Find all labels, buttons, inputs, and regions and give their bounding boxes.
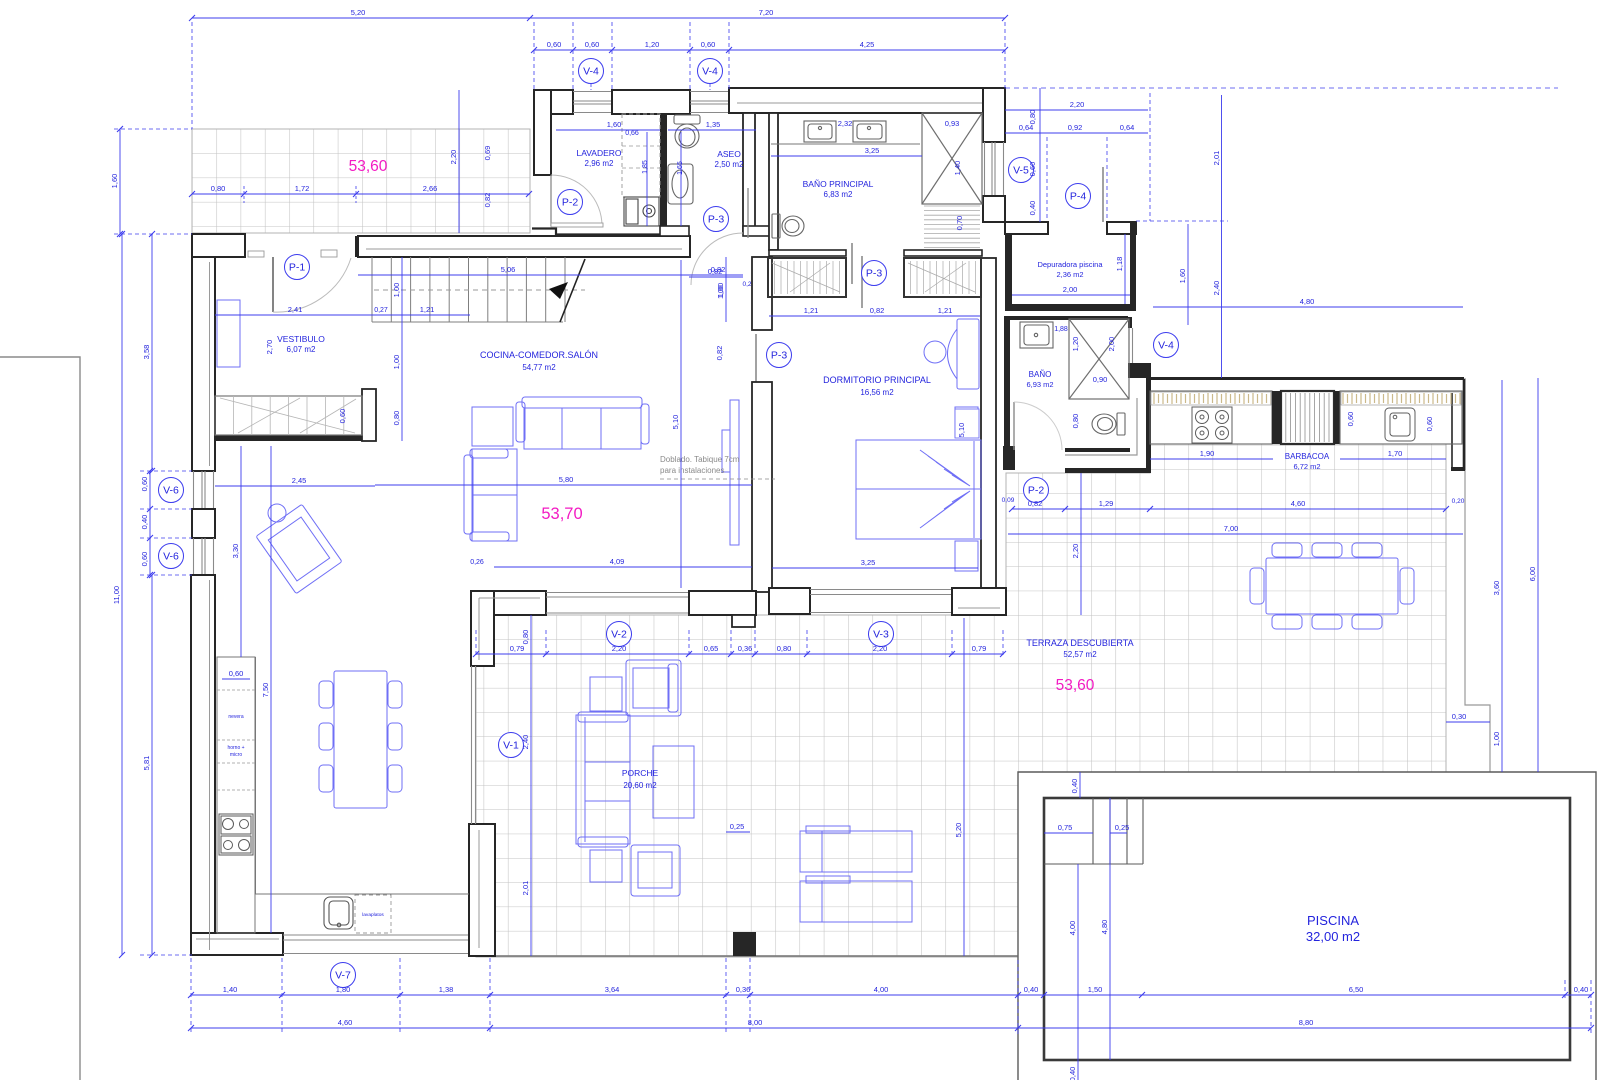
svg-text:4,00: 4,00	[874, 985, 889, 994]
svg-text:1,40: 1,40	[223, 985, 238, 994]
svg-text:3,30: 3,30	[231, 544, 240, 559]
svg-text:52,57 m2: 52,57 m2	[1063, 650, 1097, 659]
svg-text:2,01: 2,01	[1212, 151, 1221, 166]
svg-text:0,60: 0,60	[547, 40, 562, 49]
svg-text:4,80: 4,80	[1100, 920, 1109, 935]
svg-text:0,64: 0,64	[1120, 123, 1135, 132]
svg-text:1,60: 1,60	[1178, 269, 1187, 284]
svg-text:6,07 m2: 6,07 m2	[287, 345, 316, 354]
svg-text:0,70: 0,70	[955, 216, 964, 231]
svg-text:8,80: 8,80	[1299, 1018, 1314, 1027]
svg-text:16,56 m2: 16,56 m2	[860, 388, 894, 397]
svg-text:V-7: V-7	[335, 970, 351, 982]
svg-text:20,60 m2: 20,60 m2	[623, 781, 657, 790]
svg-text:3,64: 3,64	[605, 985, 620, 994]
svg-text:2,70: 2,70	[265, 340, 274, 355]
svg-text:7,00: 7,00	[1224, 524, 1239, 533]
svg-text:P-2: P-2	[1028, 485, 1045, 497]
svg-text:0,80: 0,80	[392, 411, 401, 426]
svg-text:V-2: V-2	[611, 629, 627, 641]
svg-text:7,50: 7,50	[261, 683, 270, 698]
svg-text:54,77 m2: 54,77 m2	[522, 363, 556, 372]
svg-text:0,60: 0,60	[701, 40, 716, 49]
svg-text:1,80: 1,80	[336, 985, 351, 994]
svg-text:1,35: 1,35	[706, 120, 721, 129]
svg-text:Doblado. Tabique 7cm: Doblado. Tabique 7cm	[660, 455, 740, 464]
svg-text:0,40: 0,40	[1574, 985, 1589, 994]
svg-text:V-1: V-1	[503, 740, 519, 752]
svg-text:4,80: 4,80	[1300, 297, 1315, 306]
svg-text:0,60: 0,60	[1346, 412, 1355, 427]
svg-text:2,41: 2,41	[288, 305, 303, 314]
svg-text:BAÑO PRINCIPAL: BAÑO PRINCIPAL	[803, 179, 874, 189]
svg-text:V-6: V-6	[163, 551, 179, 563]
svg-text:1,60: 1,60	[110, 174, 119, 189]
svg-text:6,50: 6,50	[1349, 985, 1364, 994]
svg-text:P-3: P-3	[771, 350, 788, 362]
svg-text:LAVADERO: LAVADERO	[576, 148, 621, 158]
svg-text:PORCHE: PORCHE	[622, 768, 659, 778]
svg-text:5,20: 5,20	[351, 8, 366, 17]
svg-text:0,92: 0,92	[1068, 123, 1083, 132]
svg-text:53,60: 53,60	[1056, 677, 1095, 694]
svg-text:11,00: 11,00	[112, 586, 121, 604]
svg-text:0,82: 0,82	[483, 193, 492, 208]
svg-text:0,30: 0,30	[1452, 712, 1467, 721]
svg-text:ASEO: ASEO	[717, 149, 741, 159]
svg-text:0,09: 0,09	[1002, 497, 1015, 504]
svg-text:0,93: 0,93	[945, 119, 960, 128]
svg-text:5,81: 5,81	[142, 756, 151, 771]
svg-text:1,21: 1,21	[420, 305, 435, 314]
svg-text:6,72 m2: 6,72 m2	[1293, 462, 1320, 471]
svg-text:1,85: 1,85	[642, 160, 649, 174]
svg-text:P-1: P-1	[289, 262, 306, 274]
svg-text:0,36: 0,36	[738, 644, 753, 653]
svg-text:0,82: 0,82	[1028, 499, 1043, 508]
svg-text:horno +: horno +	[227, 745, 244, 751]
svg-text:V-3: V-3	[873, 629, 889, 641]
svg-text:0,79: 0,79	[972, 644, 987, 653]
svg-text:0,82: 0,82	[715, 346, 724, 361]
svg-text:0,40: 0,40	[1068, 1067, 1077, 1080]
svg-text:0,36: 0,36	[736, 985, 751, 994]
svg-text:1,00: 1,00	[718, 285, 725, 299]
svg-text:P-3: P-3	[708, 214, 725, 226]
svg-text:Depuradora piscina: Depuradora piscina	[1037, 260, 1103, 269]
svg-text:6,00: 6,00	[1528, 567, 1537, 582]
svg-text:V-5: V-5	[1013, 165, 1029, 177]
svg-text:5,10: 5,10	[671, 415, 680, 430]
svg-text:4,60: 4,60	[338, 1018, 353, 1027]
svg-text:0,80: 0,80	[521, 630, 530, 645]
svg-text:2,66: 2,66	[423, 184, 438, 193]
svg-text:lavaplatos: lavaplatos	[362, 912, 384, 918]
svg-text:2,01: 2,01	[521, 881, 530, 896]
svg-text:2,00: 2,00	[1107, 337, 1116, 352]
svg-text:nevera: nevera	[228, 714, 244, 720]
svg-text:0,60: 0,60	[229, 669, 244, 678]
svg-text:0,66: 0,66	[625, 130, 639, 137]
svg-text:3,58: 3,58	[142, 345, 151, 360]
svg-text:53,60: 53,60	[349, 158, 388, 175]
svg-text:COCINA-COMEDOR.SALÓN: COCINA-COMEDOR.SALÓN	[480, 350, 598, 360]
svg-text:4,09: 4,09	[610, 557, 625, 566]
svg-text:2,00: 2,00	[1063, 285, 1078, 294]
svg-text:1,65: 1,65	[677, 161, 684, 175]
svg-text:6,93 m2: 6,93 m2	[1026, 380, 1053, 389]
svg-text:1,40: 1,40	[953, 161, 962, 176]
svg-text:0,60: 0,60	[1425, 417, 1434, 432]
svg-text:2,50 m2: 2,50 m2	[715, 160, 744, 169]
svg-text:0,90: 0,90	[1093, 375, 1108, 384]
svg-text:1,90: 1,90	[1200, 449, 1215, 458]
svg-text:5,10: 5,10	[957, 423, 966, 438]
svg-text:VESTIBULO: VESTIBULO	[277, 334, 325, 344]
svg-text:PISCINA: PISCINA	[1307, 913, 1359, 928]
svg-text:1,00: 1,00	[1492, 732, 1501, 747]
svg-text:0,80: 0,80	[1071, 414, 1080, 429]
svg-text:0,79: 0,79	[510, 644, 525, 653]
svg-text:TERRAZA DESCUBIERTA: TERRAZA DESCUBIERTA	[1026, 638, 1133, 648]
svg-text:0,40: 0,40	[1070, 779, 1079, 794]
svg-text:V-6: V-6	[163, 485, 179, 497]
svg-text:2,40: 2,40	[521, 735, 530, 750]
svg-text:1,20: 1,20	[645, 40, 660, 49]
svg-text:2,20: 2,20	[449, 150, 458, 165]
svg-text:DORMITORIO PRINCIPAL: DORMITORIO PRINCIPAL	[823, 375, 931, 385]
svg-text:para instalaciones: para instalaciones	[660, 466, 724, 475]
svg-text:3,60: 3,60	[1492, 581, 1501, 596]
svg-text:2,96 m2: 2,96 m2	[585, 159, 614, 168]
svg-text:2,20: 2,20	[1071, 544, 1080, 559]
svg-text:1,70: 1,70	[1388, 449, 1403, 458]
svg-text:1,50: 1,50	[1088, 985, 1103, 994]
svg-text:32,00 m2: 32,00 m2	[1306, 929, 1360, 944]
svg-text:1,60: 1,60	[607, 120, 622, 129]
svg-text:0,82: 0,82	[708, 267, 723, 276]
svg-text:1,29: 1,29	[1099, 499, 1114, 508]
svg-text:V-4: V-4	[1158, 340, 1174, 352]
svg-text:0,60: 0,60	[1028, 162, 1037, 177]
svg-text:0,65: 0,65	[704, 644, 719, 653]
svg-text:0,20: 0,20	[1452, 498, 1465, 505]
svg-text:1,21: 1,21	[804, 306, 819, 315]
svg-text:BAÑO: BAÑO	[1029, 370, 1052, 379]
svg-text:2,40: 2,40	[1212, 281, 1221, 296]
svg-text:P-4: P-4	[1070, 191, 1087, 203]
svg-text:1,72: 1,72	[295, 184, 310, 193]
svg-text:7,20: 7,20	[759, 8, 774, 17]
svg-text:4,25: 4,25	[860, 40, 875, 49]
svg-text:P-3: P-3	[866, 268, 883, 280]
svg-text:0,80: 0,80	[211, 184, 226, 193]
svg-text:micro: micro	[230, 752, 242, 758]
svg-text:0,60: 0,60	[338, 409, 347, 424]
svg-text:V-4: V-4	[583, 66, 599, 78]
svg-text:2,32: 2,32	[838, 119, 853, 128]
svg-text:4,00: 4,00	[1068, 921, 1077, 936]
svg-text:0,60: 0,60	[585, 40, 600, 49]
svg-text:0,80: 0,80	[1028, 110, 1037, 125]
svg-text:53,70: 53,70	[541, 505, 582, 523]
svg-text:BARBACOA: BARBACOA	[1285, 452, 1330, 461]
svg-text:0,60: 0,60	[140, 552, 149, 567]
svg-text:2,20: 2,20	[612, 644, 627, 653]
svg-text:5,06: 5,06	[501, 265, 516, 274]
svg-text:2,20: 2,20	[1070, 100, 1085, 109]
svg-text:4,60: 4,60	[1291, 499, 1306, 508]
svg-text:0,2: 0,2	[742, 281, 751, 288]
svg-text:1,20: 1,20	[1071, 337, 1080, 352]
svg-text:2,45: 2,45	[292, 476, 307, 485]
svg-text:5,80: 5,80	[559, 475, 574, 484]
svg-text:6,83 m2: 6,83 m2	[824, 190, 853, 199]
svg-text:0,40: 0,40	[1024, 985, 1039, 994]
svg-text:1,38: 1,38	[439, 985, 454, 994]
svg-text:0,27: 0,27	[374, 307, 388, 314]
svg-text:0,80: 0,80	[777, 644, 792, 653]
svg-text:0,25: 0,25	[1115, 823, 1130, 832]
svg-text:2,36 m2: 2,36 m2	[1056, 270, 1083, 279]
svg-text:1,88: 1,88	[1054, 326, 1068, 333]
svg-text:2,20: 2,20	[873, 644, 888, 653]
svg-text:3,25: 3,25	[861, 558, 876, 567]
svg-text:0,40: 0,40	[140, 515, 149, 530]
svg-text:5,20: 5,20	[954, 823, 963, 838]
svg-text:0,40: 0,40	[1028, 201, 1037, 216]
svg-text:0,60: 0,60	[140, 477, 149, 492]
svg-text:0,69: 0,69	[483, 146, 492, 161]
svg-text:0,25: 0,25	[730, 822, 745, 831]
svg-text:0,75: 0,75	[1058, 823, 1073, 832]
svg-text:1,00: 1,00	[392, 355, 401, 370]
svg-text:1,21: 1,21	[938, 306, 953, 315]
svg-text:0,26: 0,26	[470, 559, 484, 566]
svg-text:3,25: 3,25	[865, 146, 880, 155]
svg-text:V-4: V-4	[702, 66, 718, 78]
svg-text:0,82: 0,82	[870, 306, 885, 315]
svg-text:1,00: 1,00	[392, 283, 401, 298]
svg-text:1,18: 1,18	[1115, 257, 1124, 272]
svg-text:P-2: P-2	[562, 197, 579, 209]
